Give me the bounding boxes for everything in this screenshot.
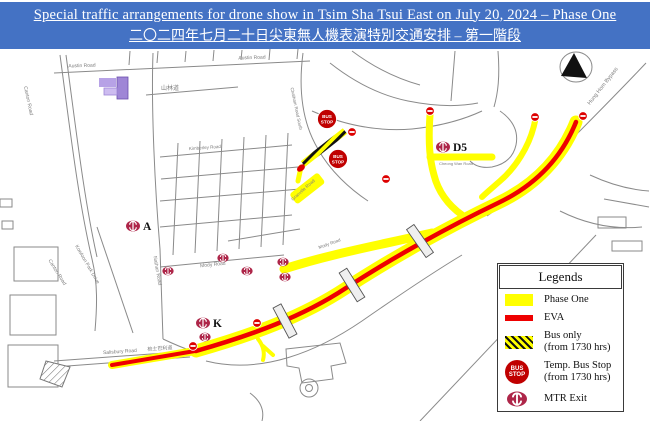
street-label: Canton Road xyxy=(22,86,34,116)
canton-road-2 xyxy=(66,55,97,257)
hart-avenue xyxy=(228,229,300,241)
svg-text:STOP: STOP xyxy=(321,119,333,124)
street-label: Mody Road xyxy=(318,237,342,250)
page: { "title": { "line1": "Special traffic a… xyxy=(0,0,650,421)
building-outline xyxy=(10,295,56,335)
svg-text:STOP: STOP xyxy=(332,159,344,164)
hillwood-road xyxy=(146,87,238,95)
legend-label: MTR Exit xyxy=(544,393,587,405)
legend-box: Legends Phase One EVA Bus only(from 1730… xyxy=(497,263,624,412)
title-bar: Special traffic arrangements for drone s… xyxy=(0,2,650,49)
street-label: Kowloon Park Drive xyxy=(73,244,100,285)
police-station-label-box xyxy=(99,78,116,87)
street-label: Austin Road xyxy=(68,63,96,70)
legend-row-phase-one: Phase One xyxy=(505,294,616,306)
legend-row-bus-only: Bus only(from 1730 hrs) xyxy=(505,330,616,354)
prat-avenue xyxy=(160,215,292,227)
building-outline xyxy=(612,241,642,251)
temp-bus-stop-icon: BUSSTOP xyxy=(318,110,337,129)
no-entry-icon xyxy=(189,342,198,351)
street-label: 山林道 xyxy=(161,84,179,92)
side-street xyxy=(239,137,244,249)
ferry-terminal-hatched xyxy=(40,361,70,387)
mtr-exit-icon xyxy=(162,267,173,276)
canton-road xyxy=(60,55,97,331)
street-label: Canton Road xyxy=(46,258,67,286)
mtr-exit-label: D5 xyxy=(453,142,467,154)
street-label: Hung Hom Bypass xyxy=(587,66,620,106)
no-entry-icon xyxy=(531,113,540,122)
small-fork xyxy=(258,339,273,360)
police-station-annex xyxy=(104,88,117,95)
eva-swatch xyxy=(505,315,533,321)
mtr-exit-icon xyxy=(277,258,288,267)
no-entry-icon xyxy=(348,128,357,137)
street-label: Cheong Wan Road xyxy=(439,161,473,166)
street-label: Mody Road xyxy=(200,261,226,270)
side-street xyxy=(269,49,270,60)
no-entry-icon xyxy=(579,112,588,121)
flyover xyxy=(312,111,482,130)
street-label: Austin Road xyxy=(238,55,266,62)
title-english: Special traffic arrangements for drone s… xyxy=(0,7,650,24)
mtr-exit-icon: D5 xyxy=(436,142,467,154)
legend-label: Phase One xyxy=(544,294,589,306)
kimberley-road xyxy=(160,145,292,157)
side-street xyxy=(129,51,130,65)
no-entry-icon xyxy=(382,175,391,184)
pier xyxy=(2,221,13,229)
temp-bus-stop-icon: BUSSTOP xyxy=(329,150,348,169)
mtr-exit-legend-icon xyxy=(505,390,529,408)
legend-label: Temp. Bus Stop(from 1730 hrs) xyxy=(544,360,611,384)
nathan-road xyxy=(152,53,163,339)
granville-road xyxy=(161,167,298,179)
mtr-exit-label: A xyxy=(143,221,152,233)
temp-bus-stop-legend-icon: BUSSTOP xyxy=(505,360,529,384)
shoreline xyxy=(250,393,263,421)
side-street xyxy=(451,51,455,101)
mtr-exit-icon xyxy=(279,273,290,282)
side-street xyxy=(185,51,186,62)
side-street xyxy=(494,51,499,107)
no-entry-icon xyxy=(253,319,262,328)
side-street xyxy=(213,50,214,61)
legend-row-mtr-exit: MTR Exit xyxy=(505,390,616,408)
round-building xyxy=(306,385,313,392)
street-label: Kimberley Road xyxy=(189,144,222,151)
mtr-exit-icon xyxy=(241,267,252,276)
side-street xyxy=(217,139,222,251)
flyover xyxy=(330,63,478,106)
legend-row-eva: EVA xyxy=(505,312,616,324)
bus-only-swatch xyxy=(505,336,533,349)
legend-items: Phase One EVA Bus only(from 1730 hrs)BUS… xyxy=(498,290,623,408)
phase-one-swatch xyxy=(505,294,533,306)
flyover xyxy=(352,51,420,85)
mtr-exit-label: K xyxy=(213,318,222,330)
side-street xyxy=(195,141,200,253)
mtr-exit-icon xyxy=(199,333,210,342)
cameron-road xyxy=(160,189,300,201)
side-street xyxy=(297,49,298,59)
side-street xyxy=(590,175,649,191)
legend-label: EVA xyxy=(544,312,564,324)
legend-label: Bus only(from 1730 hrs) xyxy=(544,330,611,354)
side-street xyxy=(560,211,642,228)
side-street xyxy=(261,135,266,247)
mtr-exit-icon: K xyxy=(196,318,222,330)
no-entry-icon xyxy=(426,107,435,116)
cultural-block xyxy=(286,343,346,383)
side-street xyxy=(157,51,158,63)
mtr-exit-icon: A xyxy=(126,221,152,233)
kowloon-park-drive xyxy=(97,227,133,333)
legend-title: Legends xyxy=(499,265,622,289)
side-street xyxy=(173,143,178,255)
side-street xyxy=(604,199,649,207)
title-chinese: 二〇二四年七月二十日尖東無人機表演特別交通安排 – 第一階段 xyxy=(0,25,650,45)
legend-row-temp-bus-stop: BUSSTOP Temp. Bus Stop(from 1730 hrs) xyxy=(505,360,616,384)
side-street xyxy=(283,133,288,245)
police-station-building xyxy=(117,77,128,99)
pier xyxy=(0,199,12,207)
